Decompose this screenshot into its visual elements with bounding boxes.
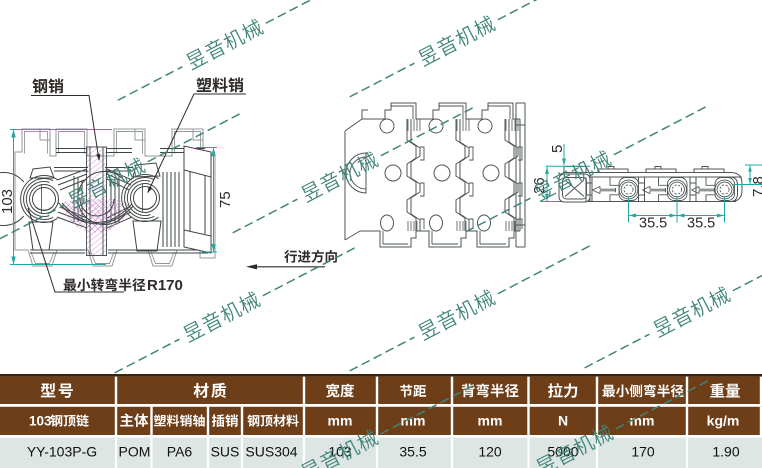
svg-text:R170: R170 xyxy=(147,277,183,294)
svg-text:35.5: 35.5 xyxy=(399,444,426,460)
svg-text:PA6: PA6 xyxy=(167,444,193,460)
svg-text:kg/m: kg/m xyxy=(707,413,740,429)
svg-text:103: 103 xyxy=(29,414,52,429)
svg-text:5: 5 xyxy=(549,145,566,153)
svg-text:35.5: 35.5 xyxy=(687,216,715,232)
svg-text:mm: mm xyxy=(328,413,353,429)
svg-text:35.5: 35.5 xyxy=(639,216,667,232)
svg-text:1.90: 1.90 xyxy=(712,444,739,460)
svg-text:mm: mm xyxy=(478,413,503,429)
svg-text:YY-103P-G: YY-103P-G xyxy=(27,444,97,460)
svg-text:120: 120 xyxy=(478,444,502,460)
svg-text:7.8: 7.8 xyxy=(750,176,762,197)
svg-text:SUS: SUS xyxy=(211,444,240,460)
svg-text:N: N xyxy=(558,413,568,429)
svg-text:mm: mm xyxy=(401,413,426,429)
svg-text:103: 103 xyxy=(0,189,16,214)
svg-text:170: 170 xyxy=(631,444,655,460)
svg-text:POM: POM xyxy=(119,444,151,460)
svg-text:SUS304: SUS304 xyxy=(245,444,297,460)
svg-text:75: 75 xyxy=(217,191,234,208)
